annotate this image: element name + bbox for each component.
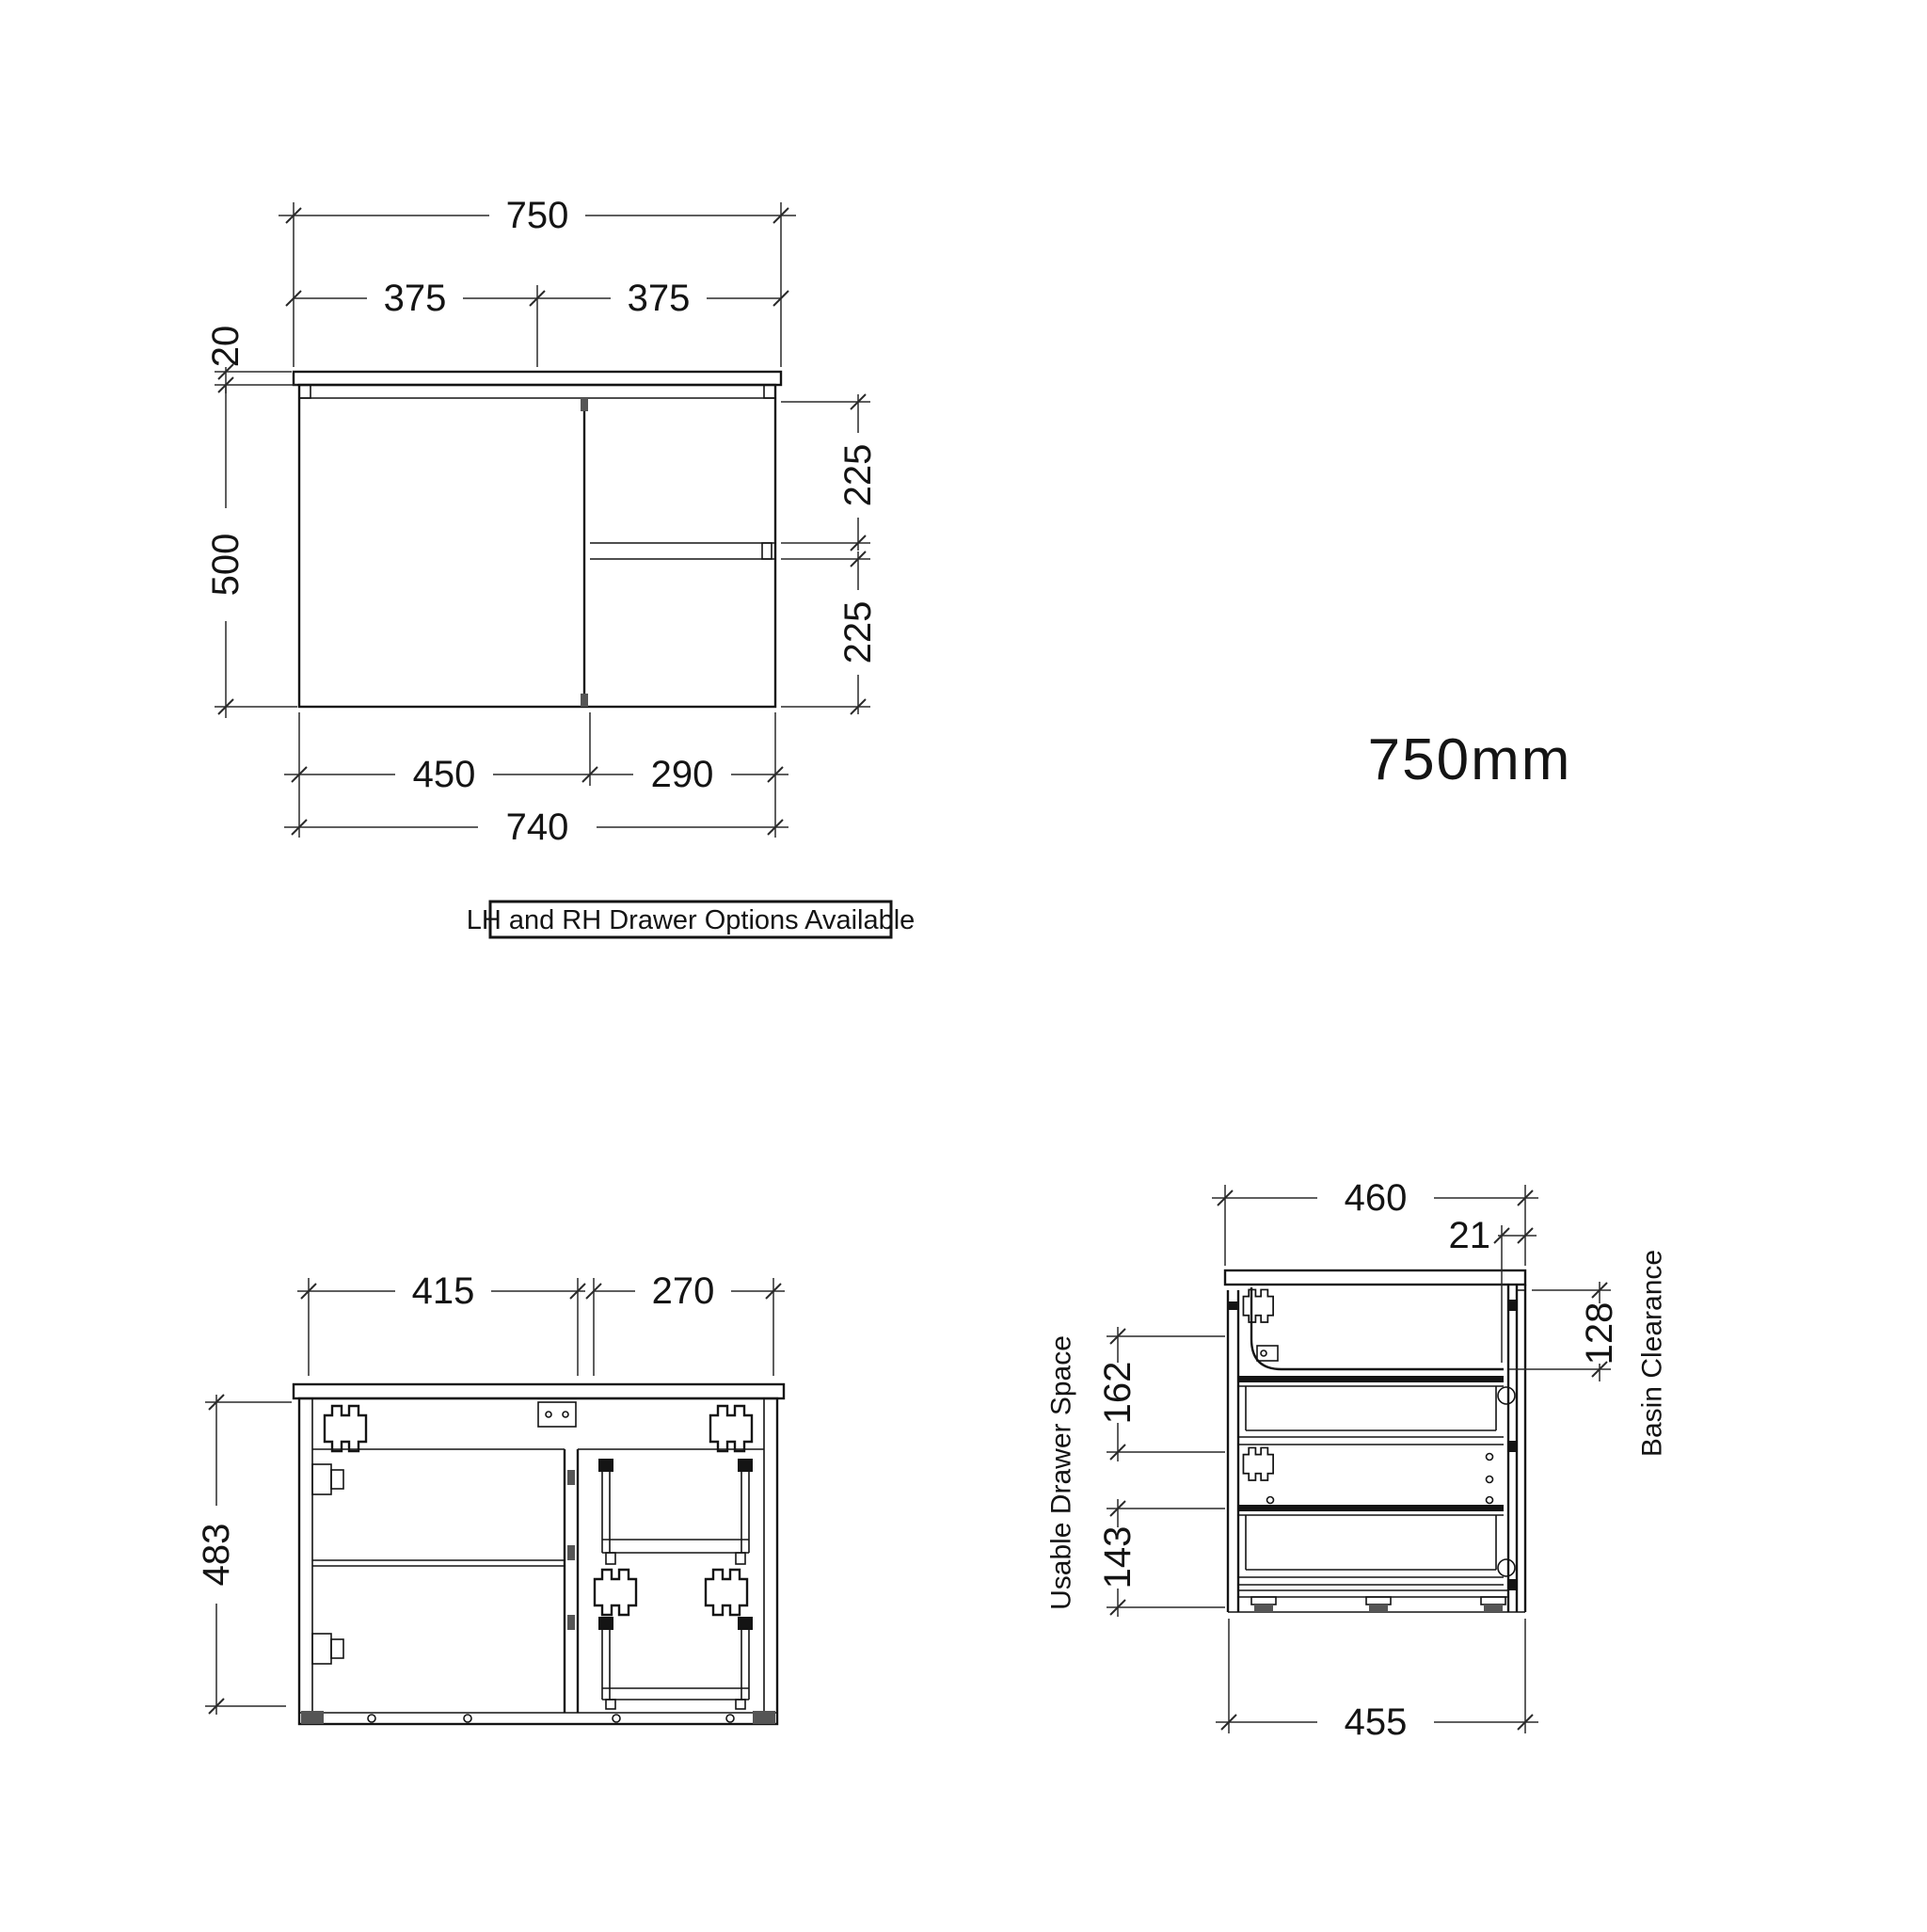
internal-bottom-screw-1 [368,1715,375,1722]
internal-right-foot [753,1711,775,1724]
dim-upper-drawer-space: 162 [1097,1327,1225,1461]
internal-front-view: 415 270 483 [196,1270,785,1724]
internal-door-hinge-upper [312,1464,343,1494]
internal-carcass-inner-walls [299,1398,777,1713]
side-feet [1251,1597,1505,1612]
side-screw-3 [1267,1497,1274,1504]
basin-clearance-label: Basin Clearance [1637,1250,1668,1457]
drawing-sheet: 750 375 375 20 500 225 [0,0,1927,1927]
dim-upper-drawer-height: 225 [781,394,879,551]
internal-center-bracket [538,1402,576,1427]
dim-upper-drawer-space-label: 162 [1097,1362,1139,1425]
side-wall-rail-block [1228,1301,1238,1310]
side-back-panel [1228,1290,1238,1612]
dim-left-opening: 415 [297,1270,585,1376]
side-upper-drawer-roller [1498,1387,1515,1404]
internal-partition-nub-3 [567,1615,575,1630]
internal-hinge-plate-top-right [710,1406,752,1451]
dim-drawer-width-label: 290 [651,754,714,795]
side-counter-top [1225,1270,1525,1285]
internal-hinge-plate-top-left [325,1406,366,1451]
front-cabinet-body [299,385,775,707]
dim-body-width: 740 [284,806,788,848]
dim-lower-drawer-height: 225 [781,551,879,714]
front-counter-top [294,372,781,385]
front-drawer-rail-cap [762,543,772,559]
front-top-rail-left-cap [299,385,311,398]
side-basin-bracket-screw [1261,1350,1266,1356]
dim-body-width-label: 740 [506,806,569,848]
internal-bottom-screw-4 [726,1715,734,1722]
internal-upper-drawer-box [598,1459,753,1564]
internal-door-hinge-lower [312,1634,343,1664]
front-top-rail-right-cap [764,385,775,398]
side-screw-4 [1487,1497,1493,1504]
dim-door-width-label: 450 [413,754,476,795]
side-hinge-plate-mid [1243,1447,1273,1480]
internal-counter-top [294,1384,784,1398]
side-screw-2 [1487,1477,1493,1483]
dim-half-widths: 375 375 [286,278,788,367]
dim-counter-thickness: 20 [205,326,297,393]
dim-lower-drawer-space-label: 143 [1097,1526,1139,1589]
side-upper-drawer [1239,1376,1515,1445]
dim-left-opening-label: 415 [412,1270,475,1312]
dim-upper-drawer-label: 225 [837,444,879,507]
callout-text: LH and RH Drawer Options Available [467,905,916,935]
dim-total-width-label: 750 [506,195,569,236]
internal-partition-nub-1 [567,1470,575,1485]
internal-mid-plate-left [595,1570,636,1615]
side-front-block-3 [1508,1579,1517,1590]
dim-body-height: 500 [205,385,297,718]
internal-left-foot [301,1711,324,1724]
front-elevation-view: 750 375 375 20 500 225 [205,195,879,848]
dim-internal-height: 483 [196,1395,292,1715]
dim-front-gap-label: 21 [1449,1215,1491,1256]
dim-internal-height-label: 483 [196,1524,237,1587]
dim-right-opening: 270 [586,1270,785,1376]
dim-body-depth: 455 [1216,1619,1538,1743]
internal-bracket-screw-1 [546,1412,551,1417]
front-divider-top-nub [581,398,588,411]
side-hinge-plate-top [1243,1289,1273,1322]
dim-basin-clearance-label: 128 [1579,1302,1620,1365]
internal-partition-nub-2 [567,1545,575,1560]
internal-bottom-screw-2 [464,1715,471,1722]
dim-counter-thickness-label: 20 [205,326,247,368]
dim-lower-drawer-space: 143 [1097,1499,1225,1617]
internal-mid-plate-right [706,1570,747,1615]
side-section-view: 460 21 128 Basin Clearance 162 [1046,1177,1668,1743]
internal-partition [565,1449,578,1713]
front-drawer-rail [590,543,775,559]
dim-half-right-label: 375 [628,278,691,319]
internal-carcass [299,1398,777,1724]
dim-lower-drawer-label: 225 [837,601,879,664]
dim-half-left-label: 375 [384,278,447,319]
usable-drawer-space-label: Usable Drawer Space [1046,1335,1077,1610]
dim-body-depth-label: 455 [1345,1701,1408,1743]
side-front-block-1 [1508,1300,1517,1311]
side-basin-profile [1251,1287,1504,1369]
front-divider-bottom-nub [581,694,588,707]
dim-front-gap: 21 [1449,1215,1537,1363]
dim-body-height-label: 500 [205,534,247,597]
internal-bracket-screw-2 [563,1412,568,1417]
technical-drawing-canvas: 750 375 375 20 500 225 [0,0,1927,1927]
dim-top-depth-label: 460 [1345,1177,1408,1219]
internal-bottom-screw-3 [613,1715,620,1722]
dim-right-opening-label: 270 [652,1270,715,1312]
side-screw-1 [1487,1454,1493,1461]
internal-lower-drawer-box [598,1617,753,1709]
side-front-block-2 [1508,1441,1517,1452]
internal-door-shelf [312,1560,565,1566]
callout-box: LH and RH Drawer Options Available [467,902,916,937]
side-lower-drawer-roller [1498,1559,1515,1576]
side-lower-drawer [1239,1505,1515,1585]
size-label: 750mm [1368,727,1572,792]
